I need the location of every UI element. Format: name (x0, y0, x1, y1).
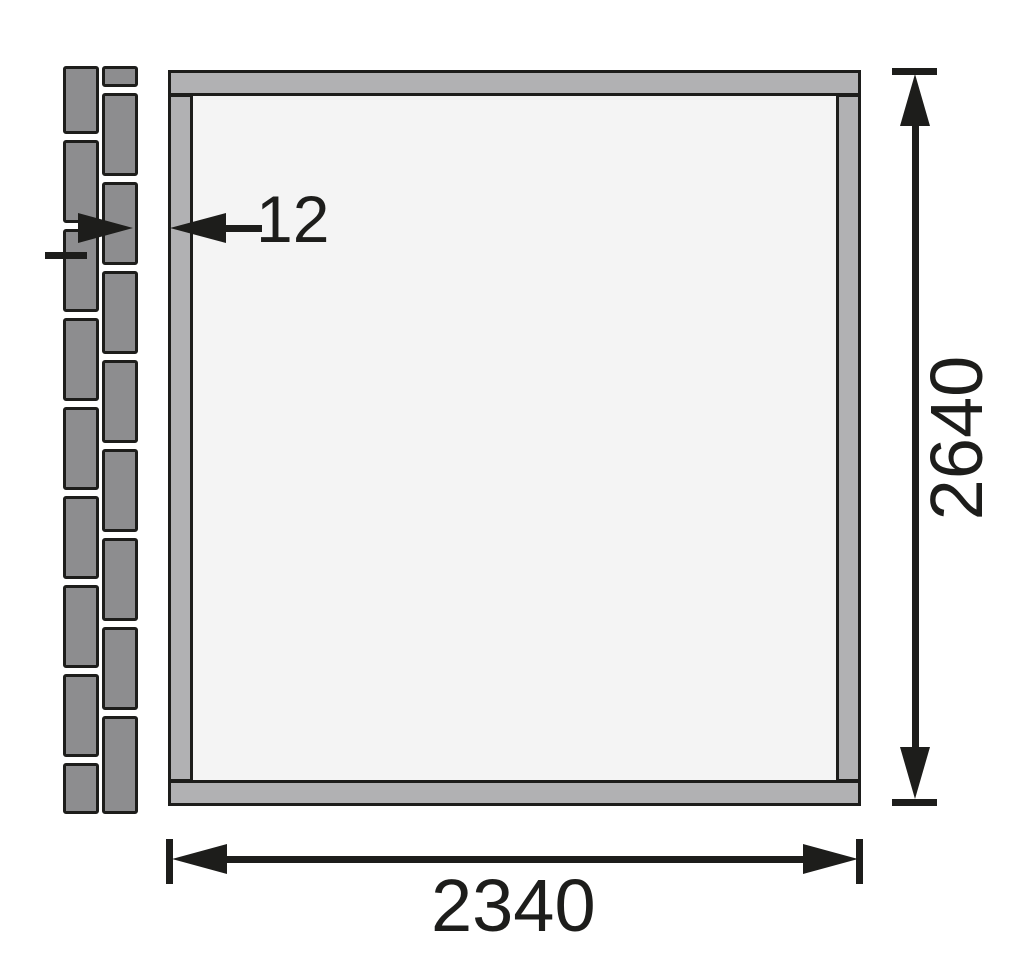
height-dimension-arrow-up-icon (900, 74, 930, 126)
plank (102, 66, 138, 87)
plank (63, 407, 99, 490)
plank (102, 93, 138, 176)
plank (63, 318, 99, 401)
plank (102, 538, 138, 621)
plank (102, 271, 138, 354)
thickness-dimension-label: 12 (256, 186, 329, 252)
height-dimension-label: 2640 (920, 353, 994, 523)
width-dimension-label: 2340 (431, 869, 595, 943)
frame-stile-left (168, 94, 193, 782)
plank (63, 585, 99, 668)
plank (63, 66, 99, 134)
height-dimension-arrow-down-icon (900, 747, 930, 799)
frame-rail-top (168, 70, 861, 96)
plank (102, 716, 138, 814)
height-dimension-tick-bottom (892, 799, 937, 806)
thickness-arrow-icon (170, 213, 226, 243)
plank (102, 360, 138, 443)
plank (63, 763, 99, 814)
plank (102, 627, 138, 710)
width-dimension-arrow-left-icon (172, 844, 227, 874)
frame-stile-right (836, 94, 861, 782)
plank (102, 449, 138, 532)
width-dimension-line (224, 856, 806, 863)
cross-section-tick-mark (45, 252, 87, 259)
plank (63, 496, 99, 579)
cross-section-thickness-arrow-icon (78, 213, 133, 243)
technical-drawing-canvas: 12 2640 2340 (0, 0, 1024, 962)
plank (63, 140, 99, 223)
plank (63, 674, 99, 757)
frame-rail-bottom (168, 780, 861, 806)
width-dimension-tick-right (856, 839, 863, 884)
width-dimension-arrow-right-icon (803, 844, 858, 874)
